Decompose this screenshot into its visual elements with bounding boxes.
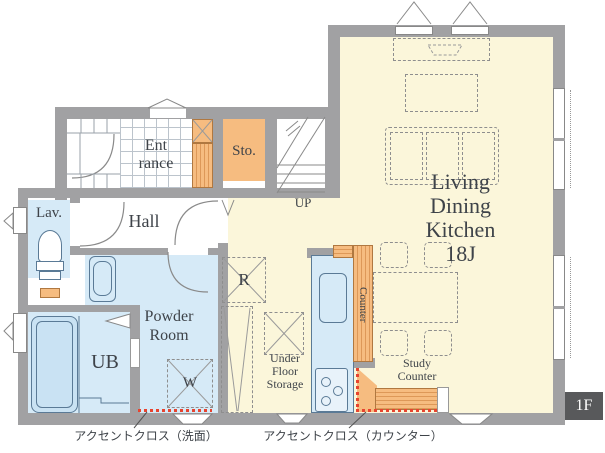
entrance-closet — [67, 119, 120, 188]
top-window-right-opening-mark — [453, 2, 487, 24]
stove-burner-1 — [321, 377, 331, 387]
rug-low-table — [405, 74, 478, 112]
powder-room-label: Powder Room — [128, 307, 210, 345]
stairwell-floor — [277, 119, 325, 190]
powder-room-label-line2: Room — [128, 326, 210, 345]
dining-chair-3 — [380, 330, 408, 356]
left-window-lavatory — [13, 207, 27, 234]
lavatory-label: Lav. — [27, 205, 71, 222]
study-counter-niche — [437, 387, 449, 413]
right-window-upper-divider — [553, 138, 565, 141]
refrigerator-label: R — [222, 257, 266, 303]
entrance-door — [150, 108, 186, 118]
floor-badge: 1F — [565, 392, 603, 420]
bathtub-inner — [36, 321, 73, 408]
lavatory-shelf — [40, 288, 60, 298]
ufs-label-line3: Storage — [254, 378, 316, 391]
ldk-label-line2: Dining — [388, 194, 533, 218]
hall-label: Hall — [100, 211, 188, 232]
stove-burner-2 — [333, 386, 343, 396]
wall-storage-stairs — [265, 107, 277, 188]
kitchen-stove — [315, 368, 348, 412]
entrance-label-line1: Ent — [118, 137, 194, 155]
top-window-left-opening-mark — [397, 2, 431, 24]
counter-top-strip — [333, 245, 353, 258]
study-counter-label: Study Counter — [381, 357, 453, 383]
dining-chair-4 — [424, 330, 452, 356]
wall-bottom — [18, 413, 565, 425]
top-window-right — [451, 26, 489, 35]
unit-bath-label: UB — [84, 351, 126, 374]
kitchen-counter-label: Counter — [353, 262, 373, 348]
ldk-label: Living Dining Kitchen 18J — [388, 170, 533, 266]
washbasin-bowl — [93, 261, 112, 296]
wall-left-upper — [55, 107, 67, 200]
right-window-lower-divider — [553, 306, 565, 309]
lav-door-opening — [70, 203, 80, 246]
accent-line-counter-bottom — [356, 409, 438, 412]
wall-hall-bottom-left — [77, 248, 168, 255]
accent-line-counter-left — [356, 368, 359, 412]
floor-plan: Living Dining Kitchen 18J Ent rance Sto.… — [0, 0, 605, 453]
bath-window-arrow — [4, 322, 13, 340]
wall-right — [553, 25, 565, 425]
tv-board — [393, 38, 490, 61]
entrance-label-line2: rance — [118, 155, 194, 173]
wall-ub-powder-lower — [130, 368, 140, 413]
dining-table — [373, 272, 458, 323]
entrance-cabinet-lower — [192, 143, 213, 188]
storage-label: Sto. — [223, 143, 265, 160]
right-window-upper-screen — [570, 90, 571, 188]
under-floor-storage-box — [264, 312, 304, 355]
ldk-label-line1: Living — [388, 170, 533, 194]
ldk-label-line3: Kitchen — [388, 218, 533, 242]
accent-cloth-counter-label: アクセントクロス（カウンター） — [258, 427, 448, 444]
wall-top-ldk — [328, 25, 565, 37]
wall-cabinet-storage — [213, 107, 223, 188]
left-window-bath — [13, 313, 27, 353]
powder-room-label-line1: Powder — [128, 307, 210, 326]
storage-door-strip — [223, 181, 265, 188]
study-counter-label-line2: Counter — [381, 370, 453, 383]
stairs-up-label: UP — [286, 195, 320, 211]
accent-cloth-basin-label: アクセントクロス（洗面） — [66, 427, 226, 444]
right-window-lower-screen — [570, 257, 571, 358]
wall-stairs-right — [325, 107, 337, 198]
lavatory-window-arrow — [4, 213, 13, 229]
top-window-left — [395, 26, 433, 35]
wall-ub-top — [18, 305, 140, 312]
kitchen-sink — [319, 273, 347, 323]
tall-storage — [221, 306, 253, 413]
washer-label: W — [167, 359, 213, 408]
stove-burner-3 — [321, 396, 331, 406]
entrance-cabinet-upper — [192, 119, 213, 143]
wall-top-left-section — [55, 107, 337, 119]
toilet-tank-upper — [36, 261, 64, 271]
accent-line-powder — [138, 409, 212, 412]
entrance-label: Ent rance — [118, 137, 194, 173]
study-counter — [375, 388, 438, 410]
toilet-tank-lower — [39, 271, 61, 280]
under-floor-storage-label: Under Floor Storage — [254, 352, 316, 391]
toilet-bowl — [38, 230, 62, 263]
ldk-label-line4: 18J — [388, 242, 533, 266]
